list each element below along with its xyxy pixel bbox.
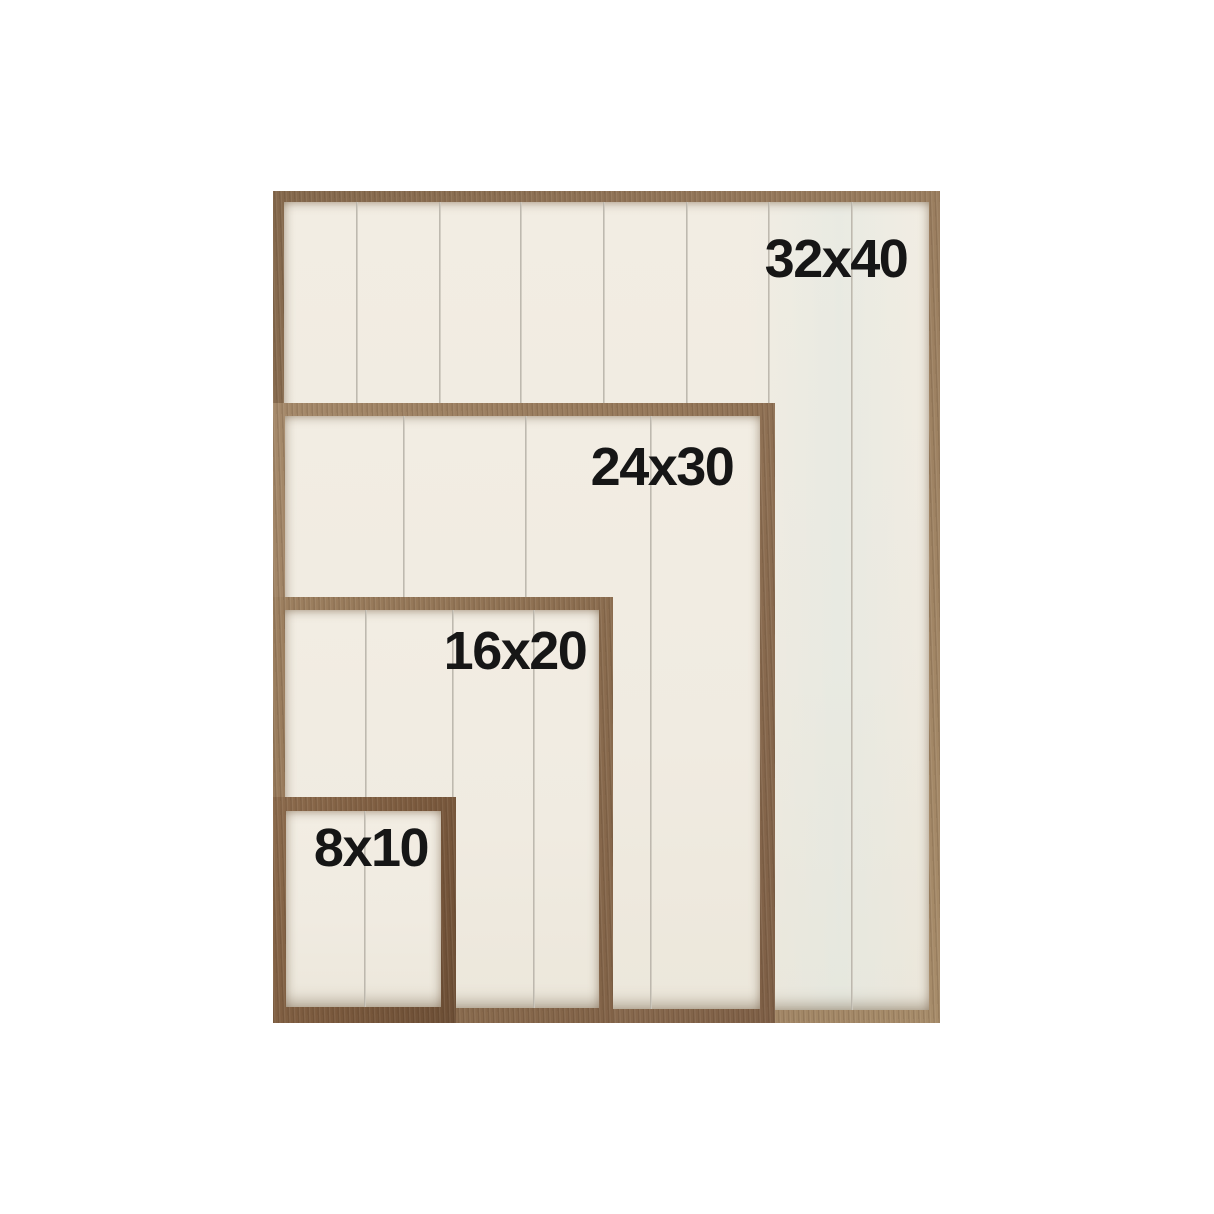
plank-divider [851, 202, 853, 1010]
size-label-32x40: 32x40 [765, 232, 908, 286]
size-comparison-stage: 32x40 24x30 16x20 8x10 [0, 0, 1214, 1214]
plank-divider [650, 416, 652, 1009]
size-label-24x30: 24x30 [591, 440, 734, 494]
size-label-8x10: 8x10 [314, 821, 428, 875]
size-label-16x20: 16x20 [444, 624, 587, 678]
